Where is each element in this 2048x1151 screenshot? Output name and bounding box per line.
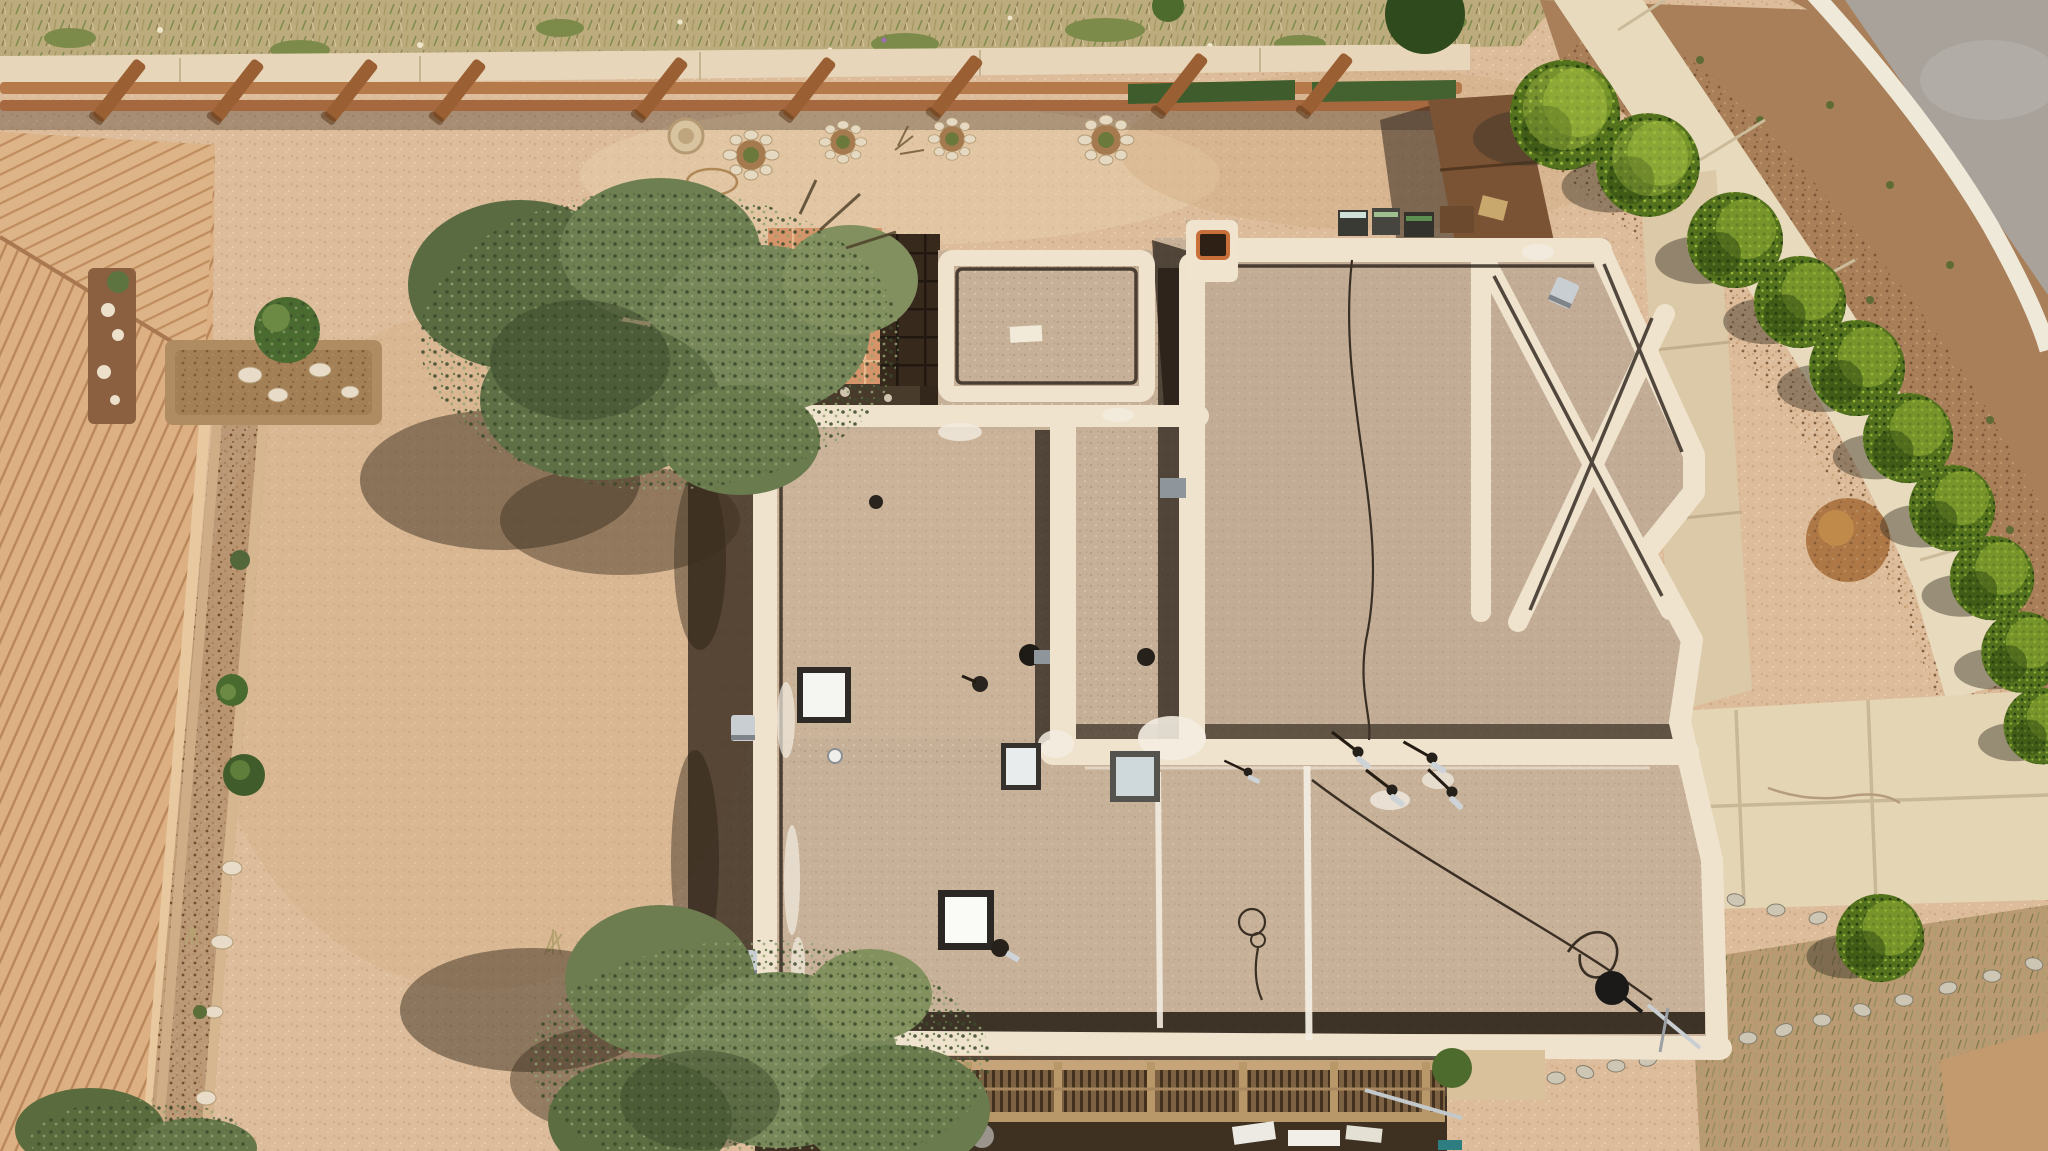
chimney-flue bbox=[1198, 232, 1228, 258]
turf-strips bbox=[1128, 80, 1295, 104]
fire-pit-bowl bbox=[669, 119, 703, 153]
stone-circle bbox=[819, 121, 867, 164]
stone-circle bbox=[928, 118, 976, 161]
stone-circle bbox=[1078, 115, 1134, 165]
dead-shrub bbox=[1806, 498, 1890, 582]
chimney bbox=[1186, 220, 1238, 282]
aerial-photo bbox=[0, 0, 2048, 1151]
wall-bush bbox=[1432, 1048, 1472, 1088]
